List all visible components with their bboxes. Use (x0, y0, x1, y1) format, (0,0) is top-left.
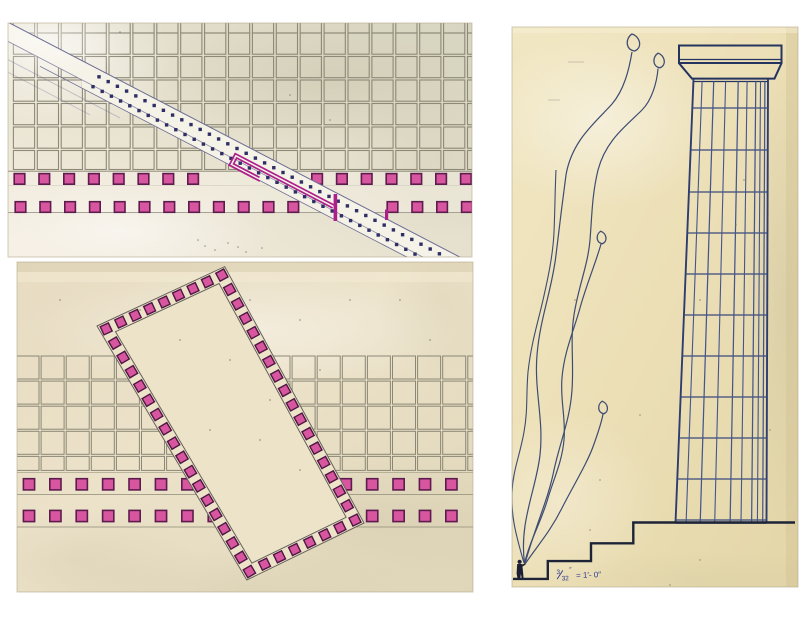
svg-text:= 1′- 0″: = 1′- 0″ (576, 570, 601, 580)
svg-text:32: 32 (562, 575, 570, 582)
